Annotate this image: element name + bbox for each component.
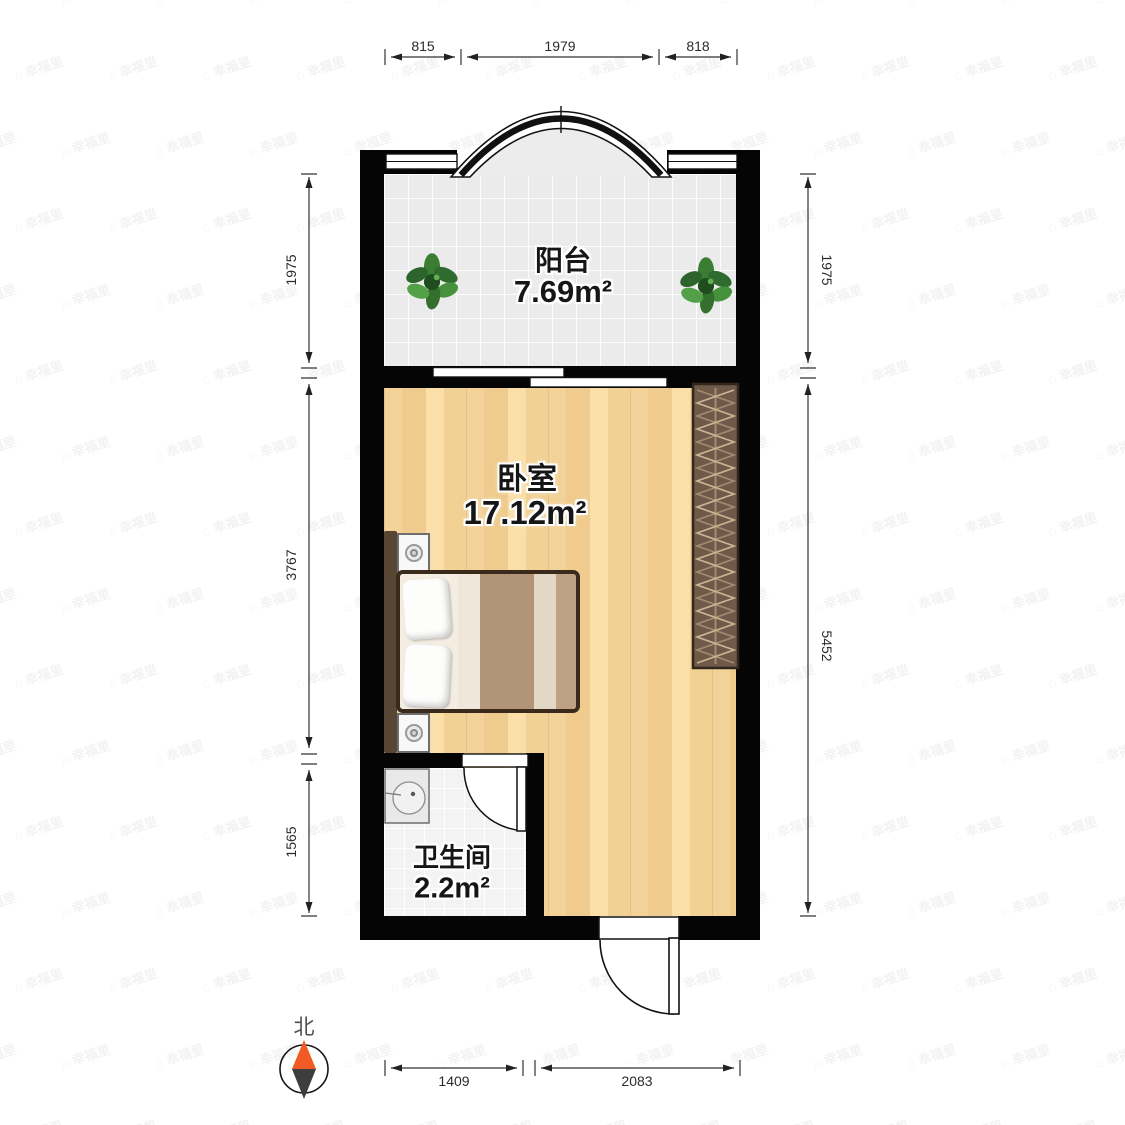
dim-label-top-1: 815 — [411, 38, 434, 54]
wardrobe — [693, 384, 738, 668]
plan-linework — [0, 0, 1125, 1125]
room-name-bathroom: 卫生间 — [413, 838, 491, 875]
dim-label-left-3: 1565 — [283, 826, 299, 857]
compass-icon — [280, 1040, 328, 1099]
room-area-balcony: 7.69m² — [514, 274, 612, 310]
window-top-right — [668, 154, 737, 169]
arched-bay-window — [451, 106, 671, 177]
dim-label-left-1: 1975 — [283, 254, 299, 285]
dim-label-top-3: 818 — [686, 38, 709, 54]
bathroom-door — [462, 754, 528, 831]
room-name-bedroom: 卧室 — [497, 454, 557, 498]
window-top-left — [386, 154, 457, 169]
dim-label-bottom-2: 2083 — [621, 1073, 652, 1089]
dim-label-right-2: 5452 — [819, 630, 835, 661]
sliding-door — [433, 368, 667, 388]
dim-label-left-2: 3767 — [283, 549, 299, 580]
dim-label-right-1: 1975 — [819, 254, 835, 285]
plant-icon — [678, 257, 734, 314]
dim-label-bottom-1: 1409 — [438, 1073, 469, 1089]
room-name-balcony: 阳台 — [535, 239, 591, 279]
sink — [385, 769, 429, 823]
room-area-bathroom: 2.2m² — [414, 873, 490, 906]
entry-door — [599, 917, 679, 1014]
north-label: 北 — [294, 1011, 315, 1041]
floor-plan-canvas: ⌂ 幸福里⌂ 幸福里⌂ 幸福里⌂ 幸福里⌂ 幸福里⌂ 幸福里⌂ 幸福里⌂ 幸福里… — [0, 0, 1125, 1125]
plant-icon — [404, 253, 460, 310]
room-area-bedroom: 17.12m² — [464, 494, 587, 532]
dim-label-top-2: 1979 — [544, 38, 575, 54]
